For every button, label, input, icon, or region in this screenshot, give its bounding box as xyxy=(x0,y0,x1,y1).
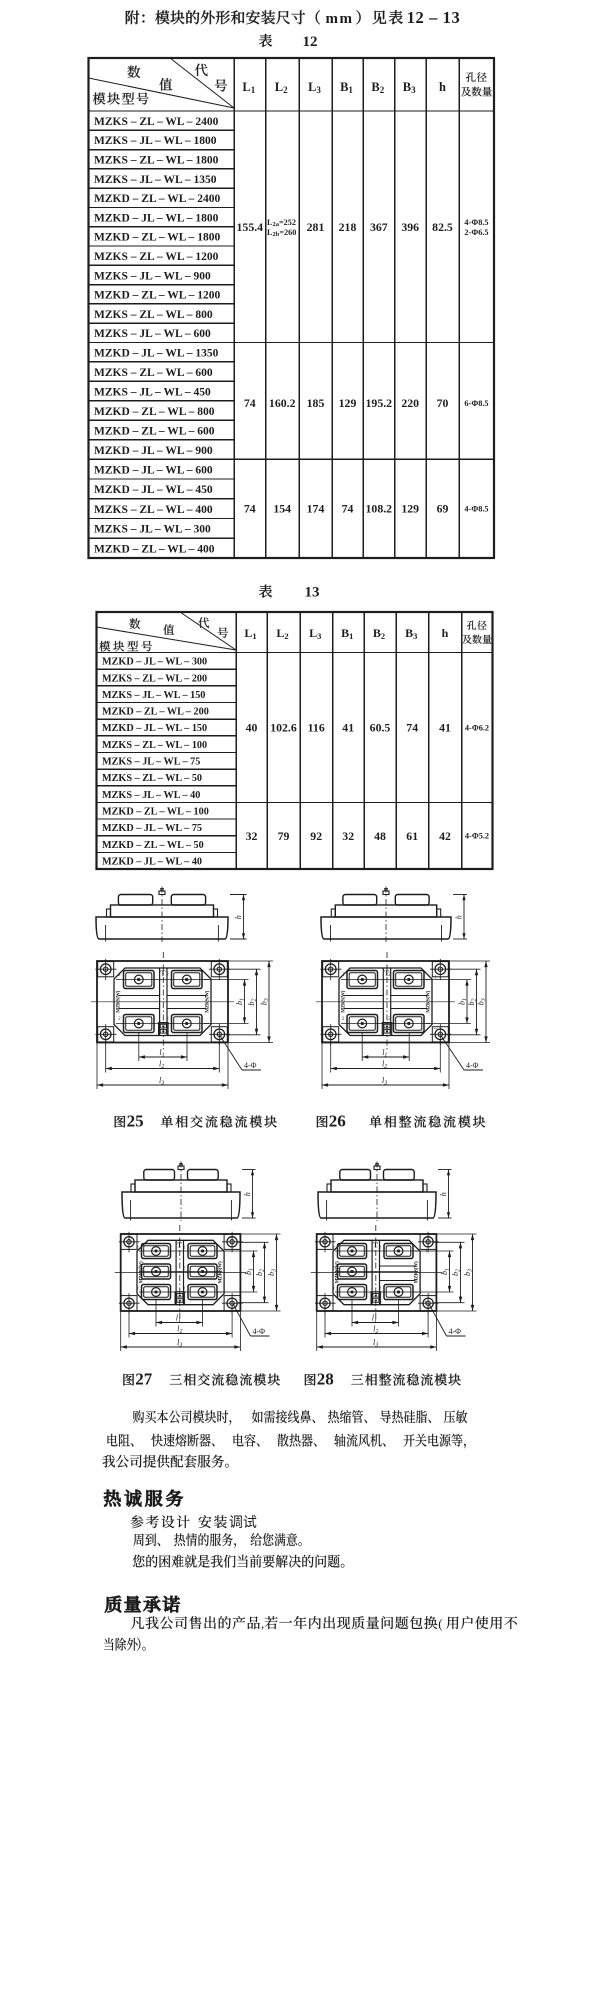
svg-text:b1: b1 xyxy=(244,1268,255,1275)
svg-text:185: 185 xyxy=(307,396,325,410)
svg-text:L3: L3 xyxy=(309,626,321,641)
svg-text:MZKS – ZL – WL – 1800: MZKS – ZL – WL – 1800 xyxy=(94,155,219,167)
svg-text:396: 396 xyxy=(401,220,419,234)
svg-text:MZKS – ZL – WL – 600: MZKS – ZL – WL – 600 xyxy=(94,367,213,379)
svg-text:6-Φ8.5: 6-Φ8.5 xyxy=(464,399,488,408)
svg-text:42: 42 xyxy=(439,829,451,843)
svg-text:174: 174 xyxy=(307,502,325,516)
svg-text:28: 28 xyxy=(317,1370,334,1389)
svg-text:25: 25 xyxy=(127,1112,144,1131)
svg-text:MZKS – JL – WL – 900: MZKS – JL – WL – 900 xyxy=(94,270,211,282)
svg-text:MZKD – ZL – WL – 600: MZKD – ZL – WL – 600 xyxy=(94,425,215,437)
svg-text:74: 74 xyxy=(406,721,418,735)
svg-text:MZKD – JL – WL – 1800: MZKD – JL – WL – 1800 xyxy=(94,212,219,224)
svg-text:4-Φ6.2: 4-Φ6.2 xyxy=(465,724,489,733)
svg-text:b3: b3 xyxy=(477,998,488,1005)
svg-text:69: 69 xyxy=(437,502,449,516)
svg-text:2: 2 xyxy=(342,1017,345,1022)
svg-text:MZKS – ZL – WL – 1200: MZKS – ZL – WL – 1200 xyxy=(94,251,219,263)
svg-text:218: 218 xyxy=(339,220,357,234)
svg-text:b3: b3 xyxy=(267,1269,278,1276)
svg-text:MZKD – JL – WL – 300: MZKD – JL – WL – 300 xyxy=(102,657,207,668)
svg-text:MZKD – JL – WL – 75: MZKD – JL – WL – 75 xyxy=(102,823,202,834)
svg-text:+: + xyxy=(425,1246,429,1255)
svg-text:h: h xyxy=(234,915,243,919)
svg-text:12 – 13: 12 – 13 xyxy=(407,8,461,27)
svg-text:l1: l1 xyxy=(159,1048,164,1059)
svg-text:26: 26 xyxy=(329,1112,346,1131)
svg-text:195.2: 195.2 xyxy=(366,396,393,410)
svg-text:MZKS – ZL – WL – 200: MZKS – ZL – WL – 200 xyxy=(102,673,207,684)
svg-text:MZKD – JL – WL – 900: MZKD – JL – WL – 900 xyxy=(94,445,213,457)
svg-text:2: 2 xyxy=(379,1246,382,1251)
svg-text:108.2: 108.2 xyxy=(366,502,393,516)
svg-text:h: h xyxy=(243,1192,252,1196)
svg-text:B2: B2 xyxy=(373,626,385,641)
svg-text:MZKS – ZL – WL – 2400: MZKS – ZL – WL – 2400 xyxy=(94,116,219,128)
svg-text:MZKD – ZL – WL – 50: MZKD – ZL – WL – 50 xyxy=(102,840,204,851)
svg-text:2: 2 xyxy=(332,1287,335,1292)
svg-text:调试: 调试 xyxy=(229,1515,257,1531)
svg-text:MZKS – JL – WL – 150: MZKS – JL – WL – 150 xyxy=(102,690,205,701)
svg-text:70: 70 xyxy=(437,396,449,410)
svg-text:2: 2 xyxy=(118,1017,121,1022)
svg-text:41: 41 xyxy=(439,721,451,735)
svg-text:h: h xyxy=(439,80,446,94)
svg-text:4-Φ8.5: 4-Φ8.5 xyxy=(464,218,488,227)
svg-text:b1: b1 xyxy=(235,998,246,1005)
svg-text:MZKD – ZL – WL – 800: MZKD – ZL – WL – 800 xyxy=(94,406,215,418)
svg-text:MZKD – ZL – WL – 100: MZKD – ZL – WL – 100 xyxy=(102,807,209,818)
svg-text:281: 281 xyxy=(307,220,325,234)
svg-text:160.2: 160.2 xyxy=(269,396,296,410)
svg-text:l3: l3 xyxy=(177,1338,182,1349)
svg-text:MZKD – JL – WL – 40: MZKD – JL – WL – 40 xyxy=(102,857,202,868)
svg-text:l3: l3 xyxy=(382,1076,387,1087)
svg-text:MZKS – JL – WL – 600: MZKS – JL – WL – 600 xyxy=(94,328,211,340)
svg-text:32: 32 xyxy=(246,829,258,843)
svg-text:MZKS – JL – WL – 1350: MZKS – JL – WL – 1350 xyxy=(94,174,217,186)
svg-text:L1: L1 xyxy=(244,626,256,641)
svg-text:MZKS – JL – WL – 40: MZKS – JL – WL – 40 xyxy=(102,790,200,801)
svg-text:–: – xyxy=(433,1023,438,1032)
svg-text:4-Φ: 4-Φ xyxy=(449,1327,462,1336)
svg-text:MZKD – ZL – WL – 400: MZKD – ZL – WL – 400 xyxy=(94,543,215,555)
svg-text:l2: l2 xyxy=(159,1060,164,1071)
svg-text:155.4: 155.4 xyxy=(237,220,264,234)
svg-text:74: 74 xyxy=(244,502,256,516)
svg-text:h: h xyxy=(439,1192,448,1196)
svg-text:l2: l2 xyxy=(373,1325,378,1336)
svg-text:l2: l2 xyxy=(382,1060,387,1071)
svg-text:367: 367 xyxy=(370,220,388,234)
svg-text:h: h xyxy=(442,626,449,640)
svg-text:B1: B1 xyxy=(341,626,353,641)
svg-text:MZKS – JL – WL – 450: MZKS – JL – WL – 450 xyxy=(94,386,211,398)
svg-text:2: 2 xyxy=(136,1287,139,1292)
svg-text:MZKD – ZL – WL – 1800: MZKD – ZL – WL – 1800 xyxy=(94,232,221,244)
svg-text:B1: B1 xyxy=(340,80,353,95)
svg-text:154: 154 xyxy=(273,502,291,516)
svg-text:12: 12 xyxy=(303,34,318,50)
svg-text:40: 40 xyxy=(246,721,258,735)
svg-text:(: ( xyxy=(438,1616,442,1631)
svg-text:b2: b2 xyxy=(255,1269,266,1276)
svg-text:4-Φ5.2: 4-Φ5.2 xyxy=(465,832,489,841)
svg-text:l3: l3 xyxy=(159,1076,164,1087)
svg-text:129: 129 xyxy=(401,502,419,516)
svg-text:,: , xyxy=(261,1616,264,1631)
svg-text:b3: b3 xyxy=(463,1269,474,1276)
svg-text:l1: l1 xyxy=(176,1314,181,1325)
svg-text:2-Φ6.5: 2-Φ6.5 xyxy=(464,228,488,237)
svg-text:27: 27 xyxy=(135,1370,153,1389)
svg-text:4-Φ: 4-Φ xyxy=(253,1327,266,1336)
svg-text:116: 116 xyxy=(308,721,325,735)
svg-text:l2: l2 xyxy=(177,1325,182,1336)
svg-text:48: 48 xyxy=(374,829,386,843)
svg-text:MZKD – JL – WL – 150: MZKD – JL – WL – 150 xyxy=(102,723,207,734)
svg-text:41: 41 xyxy=(342,721,354,735)
svg-text:4-Φ: 4-Φ xyxy=(244,1061,257,1070)
svg-text:74: 74 xyxy=(244,396,256,410)
svg-text:2: 2 xyxy=(183,1267,186,1272)
svg-text:4-Φ8.5: 4-Φ8.5 xyxy=(464,505,488,514)
svg-text:MZKS – ZL – WL – 50: MZKS – ZL – WL – 50 xyxy=(102,773,202,784)
svg-text:b1: b1 xyxy=(440,1268,451,1275)
svg-text:129: 129 xyxy=(339,396,357,410)
svg-text:–: – xyxy=(424,1296,429,1305)
svg-text:B3: B3 xyxy=(405,626,417,641)
svg-text:b2: b2 xyxy=(247,999,258,1006)
svg-text:61: 61 xyxy=(406,829,418,843)
svg-text:60.5: 60.5 xyxy=(370,721,391,735)
svg-text:92: 92 xyxy=(310,829,322,843)
svg-text:MZKD – ZL – WL – 2400: MZKD – ZL – WL – 2400 xyxy=(94,193,221,205)
svg-text:L2: L2 xyxy=(275,80,288,95)
svg-text:79: 79 xyxy=(278,829,290,843)
svg-text:L2a=252: L2a=252 xyxy=(267,218,296,228)
svg-text:L2: L2 xyxy=(276,626,288,641)
svg-text:MZKS – ZL – WL – 100: MZKS – ZL – WL – 100 xyxy=(102,740,207,751)
svg-text:MZKS – ZL – WL – 800: MZKS – ZL – WL – 800 xyxy=(94,309,213,321)
svg-text:2: 2 xyxy=(166,1017,169,1022)
svg-text:MZKS – JL – WL – 300: MZKS – JL – WL – 300 xyxy=(94,524,211,536)
svg-text:MZKS – ZL – WL – 400: MZKS – ZL – WL – 400 xyxy=(94,504,213,516)
svg-text:b2: b2 xyxy=(451,1269,462,1276)
svg-text:B3: B3 xyxy=(403,80,416,95)
svg-text:2: 2 xyxy=(118,973,121,978)
svg-text:MZKD – ZL – WL – 1200: MZKD – ZL – WL – 1200 xyxy=(94,290,221,302)
svg-text:L1: L1 xyxy=(242,80,255,95)
svg-text:13: 13 xyxy=(305,585,320,601)
svg-text:MZKD – ZL – WL – 200: MZKD – ZL – WL – 200 xyxy=(102,707,209,718)
svg-text:l1: l1 xyxy=(382,1048,387,1059)
svg-text:L3: L3 xyxy=(308,80,321,95)
svg-text:MZKS – JL – WL – 75: MZKS – JL – WL – 75 xyxy=(102,757,200,768)
svg-text:MZKS – JL – WL – 1800: MZKS – JL – WL – 1800 xyxy=(94,135,217,147)
svg-text:MZKD – JL – WL – 1350: MZKD – JL – WL – 1350 xyxy=(94,348,219,360)
svg-text:mm: mm xyxy=(326,11,354,27)
svg-text:MZKD – JL – WL – 600: MZKD – JL – WL – 600 xyxy=(94,464,213,476)
svg-text:2: 2 xyxy=(166,973,169,978)
svg-text:l3: l3 xyxy=(373,1338,378,1349)
svg-text:h: h xyxy=(455,915,464,919)
svg-text:32: 32 xyxy=(342,829,354,843)
svg-text:b3: b3 xyxy=(260,998,271,1005)
svg-text:B2: B2 xyxy=(371,80,384,95)
svg-text:2: 2 xyxy=(183,1246,186,1251)
svg-text:220: 220 xyxy=(401,396,419,410)
svg-text:L2b=260: L2b=260 xyxy=(267,228,296,238)
svg-text:l1: l1 xyxy=(372,1314,377,1325)
svg-text:102.6: 102.6 xyxy=(270,721,297,735)
svg-text:74: 74 xyxy=(342,502,354,516)
svg-text:82.5: 82.5 xyxy=(432,220,453,234)
svg-text:4-Φ: 4-Φ xyxy=(466,1061,479,1070)
svg-text:MZKD – JL – WL – 450: MZKD – JL – WL – 450 xyxy=(94,484,213,496)
